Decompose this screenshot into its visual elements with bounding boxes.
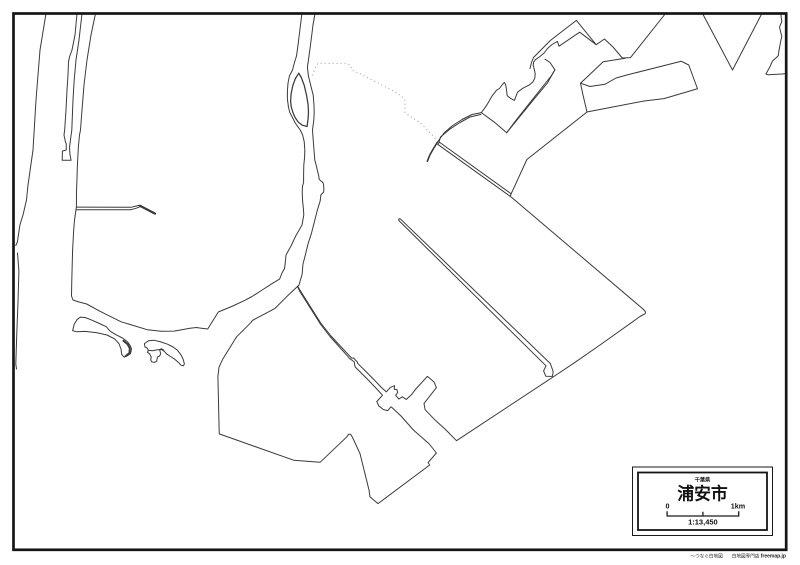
svg-text:0: 0 bbox=[666, 502, 670, 511]
svg-text:1:13,450: 1:13,450 bbox=[688, 518, 718, 527]
svg-text:1km: 1km bbox=[731, 502, 745, 511]
svg-text:〜つなぐ白地図 白地図専門店 freemap.jp: 〜つなぐ白地図 白地図専門店 freemap.jp bbox=[691, 553, 786, 560]
svg-text:千葉県: 千葉県 bbox=[695, 476, 711, 484]
svg-text:浦安市: 浦安市 bbox=[677, 484, 728, 504]
